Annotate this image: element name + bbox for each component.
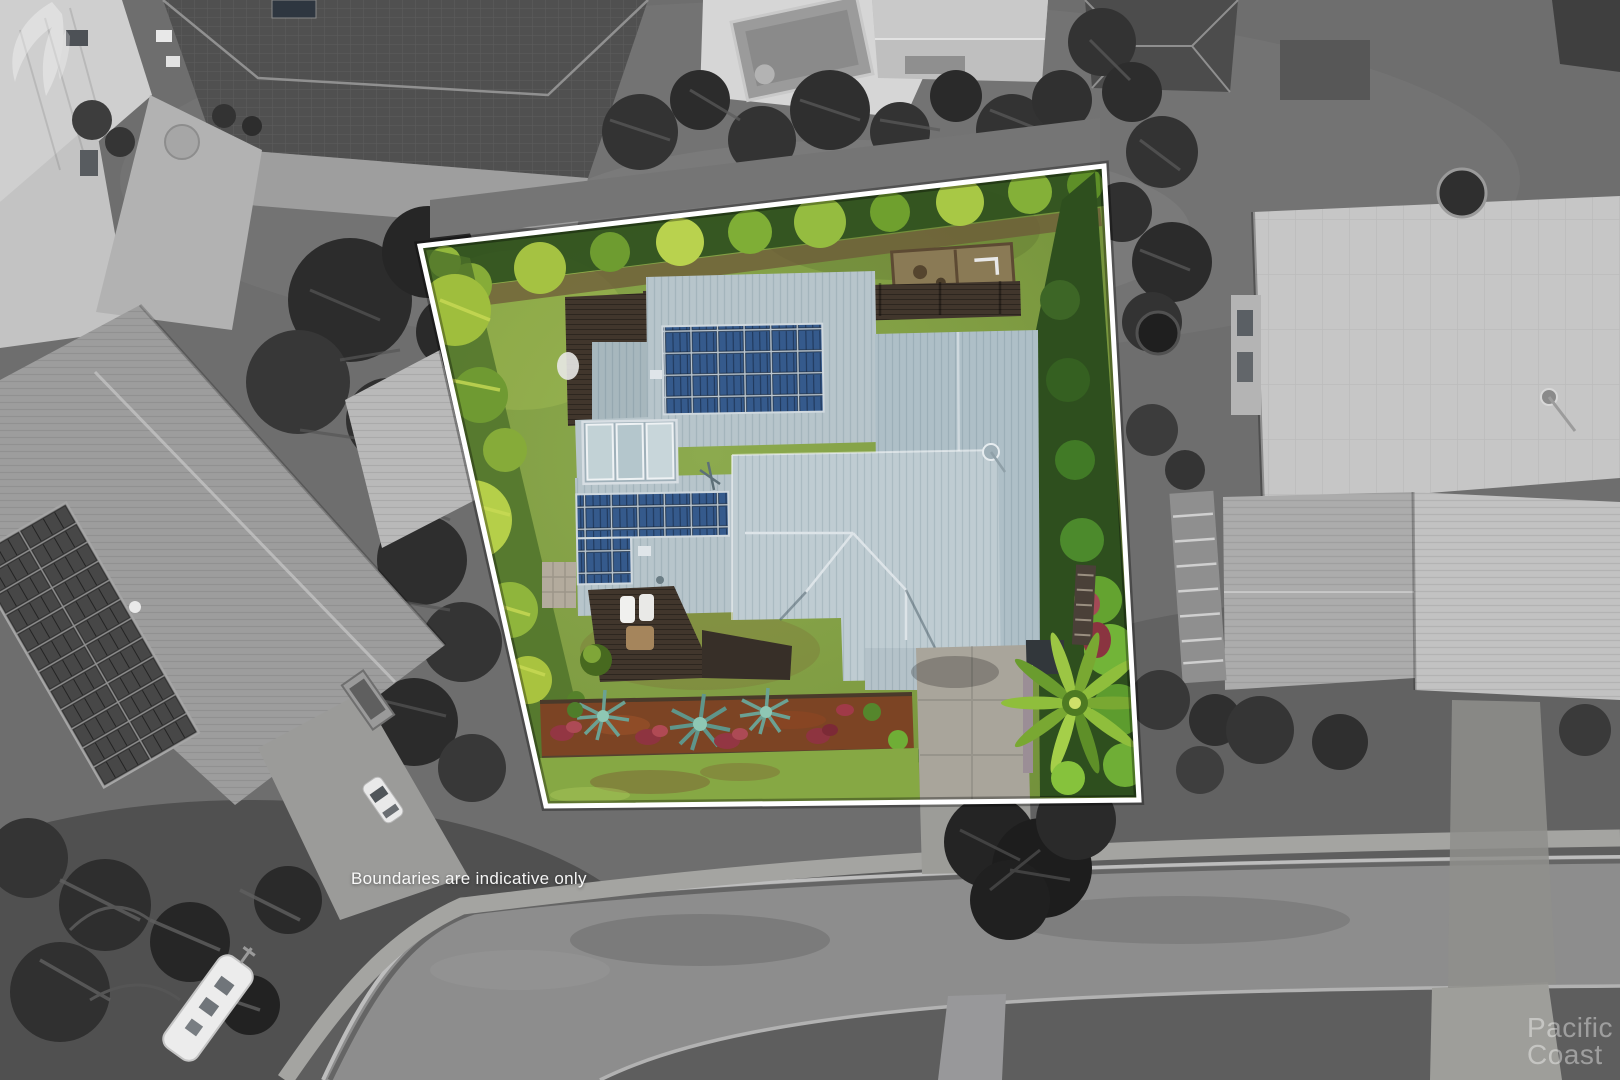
crossover-south-1 (938, 994, 1006, 1080)
neighbor-house-top-center (872, 0, 1048, 82)
retaining-wall (1023, 665, 1033, 773)
white-tarp (557, 352, 579, 380)
neighbor-solar-panel (272, 0, 316, 18)
boundary-disclaimer-text: Boundaries are indicative only (351, 869, 587, 889)
skylights (582, 420, 677, 484)
watermark-line1: Pacific (1527, 1014, 1620, 1041)
watermark-line2: Coast (1527, 1041, 1620, 1068)
solar-array-lower (576, 492, 729, 539)
solar-array-upper (662, 324, 824, 415)
watermark-wave-icon (0, 0, 70, 100)
neighbor-driveway-right (1448, 700, 1556, 988)
sun-lounger (620, 596, 635, 623)
water-tank (1137, 312, 1179, 354)
neighbor-roof-corner (1552, 0, 1620, 72)
aerial-photo (0, 0, 1620, 1080)
neighbor-house-right-a (1231, 196, 1620, 506)
sun-lounger (639, 594, 654, 621)
watermark-text: Pacific Coast (1527, 1014, 1620, 1080)
paver-patio (542, 562, 576, 608)
aerial-photo-stage: Boundaries are indicative only Pacific C… (0, 0, 1620, 1080)
side-deck (557, 293, 652, 426)
neighbor-house-right-b (1223, 492, 1620, 700)
trampoline (1438, 169, 1486, 217)
solar-array-lower-ext (577, 537, 632, 584)
wicker-daybed (626, 626, 654, 650)
